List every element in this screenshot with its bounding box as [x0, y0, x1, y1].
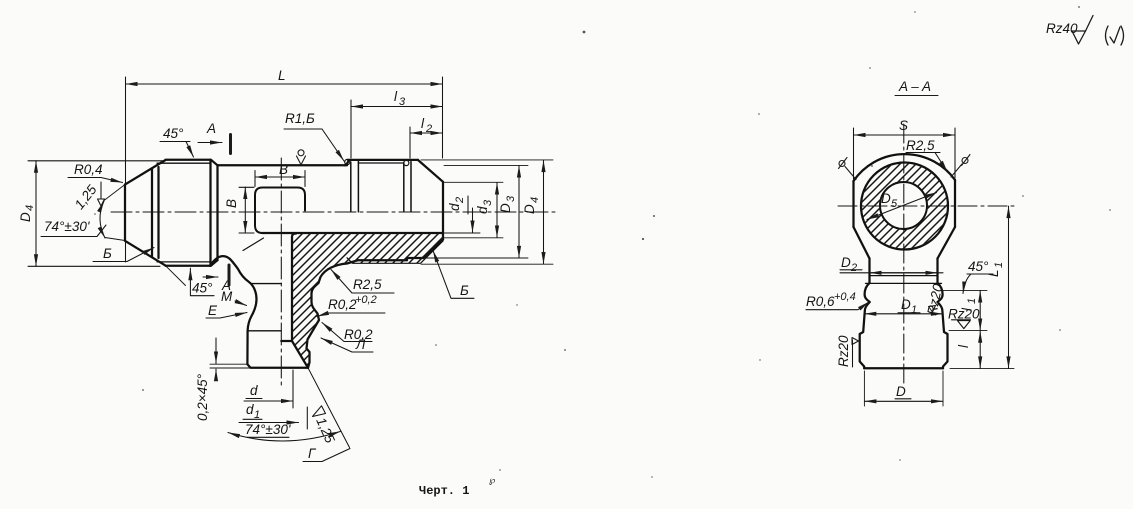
svg-text:74°±30': 74°±30': [44, 219, 90, 234]
svg-text:D: D: [498, 203, 513, 213]
svg-text:В: В: [224, 199, 239, 208]
svg-text:l: l: [956, 344, 971, 348]
svg-text:Rz20: Rz20: [836, 335, 851, 367]
svg-text:d: d: [250, 383, 258, 398]
svg-text:l: l: [394, 89, 398, 104]
svg-text:1,25: 1,25: [72, 182, 100, 212]
svg-text:Б: Б: [460, 283, 469, 298]
svg-text:E: E: [208, 303, 218, 318]
svg-text:4: 4: [24, 205, 36, 211]
svg-text:1,25: 1,25: [313, 415, 338, 446]
svg-text:+0,4: +0,4: [834, 291, 856, 303]
svg-text:Л: Л: [355, 337, 366, 352]
svg-text:M: M: [221, 289, 233, 304]
svg-text:4: 4: [529, 197, 541, 203]
svg-text:74°±30': 74°±30': [245, 422, 291, 437]
svg-text:2: 2: [454, 197, 466, 204]
svg-text:3: 3: [399, 96, 406, 108]
svg-text:L: L: [986, 269, 1001, 277]
svg-text:1: 1: [993, 262, 1005, 268]
svg-text:1: 1: [966, 298, 978, 304]
svg-text:℘: ℘: [489, 475, 495, 485]
svg-text:L: L: [278, 68, 286, 83]
svg-text:2: 2: [850, 262, 857, 274]
svg-text:d: d: [447, 203, 462, 211]
svg-text:R0,4: R0,4: [74, 162, 103, 177]
svg-text:3: 3: [482, 199, 494, 206]
svg-text:45°: 45°: [192, 281, 213, 296]
svg-text:D: D: [841, 255, 851, 270]
svg-text:R2,5: R2,5: [353, 277, 382, 292]
svg-text:+0,2: +0,2: [355, 294, 377, 306]
svg-text:3: 3: [505, 195, 517, 202]
svg-text:d: d: [246, 402, 254, 417]
svg-text:d: d: [475, 206, 490, 214]
svg-text:В: В: [279, 162, 288, 177]
svg-text:45°: 45°: [163, 126, 184, 141]
svg-text:R2,5: R2,5: [906, 138, 935, 153]
svg-text:R0,2: R0,2: [328, 297, 357, 312]
svg-text:Б: Б: [103, 246, 112, 261]
svg-text:l: l: [421, 116, 425, 131]
svg-text:D: D: [901, 297, 911, 312]
svg-text:0,2×45°: 0,2×45°: [195, 373, 210, 421]
svg-text:D: D: [522, 204, 537, 214]
svg-text:R0,6: R0,6: [806, 294, 835, 309]
svg-text:D: D: [881, 191, 891, 206]
svg-text:2: 2: [425, 123, 432, 135]
svg-text:D: D: [896, 384, 906, 399]
svg-text:S: S: [899, 118, 908, 133]
svg-text:R1,Б: R1,Б: [285, 111, 315, 126]
svg-text:A – A: A – A: [898, 79, 931, 94]
svg-text:Г: Г: [308, 446, 317, 461]
svg-text:A: A: [206, 121, 216, 136]
svg-text:Черт. 1: Черт. 1: [419, 484, 469, 498]
svg-text:D: D: [18, 212, 33, 222]
